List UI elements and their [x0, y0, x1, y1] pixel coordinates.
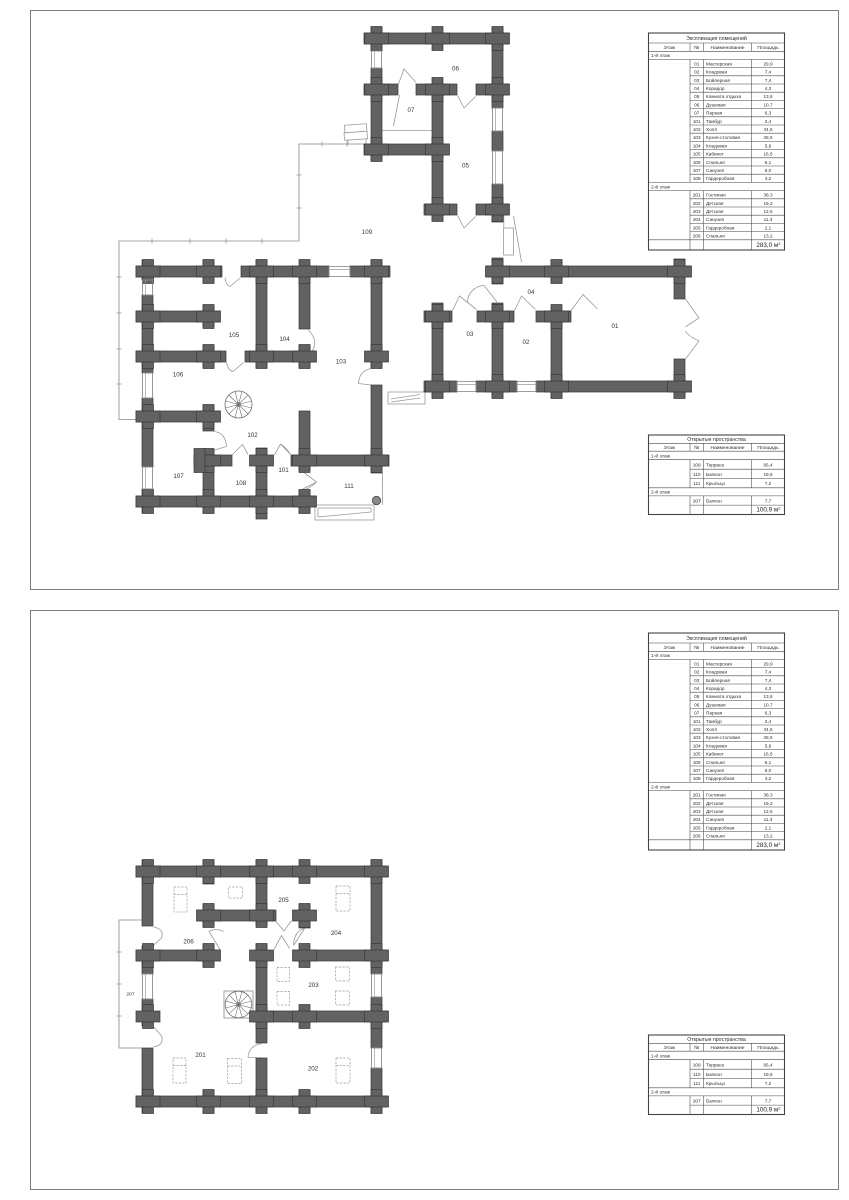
svg-text:107: 107: [173, 473, 184, 480]
svg-text:06: 06: [452, 66, 459, 73]
svg-text:101: 101: [278, 467, 289, 474]
svg-text:205: 205: [278, 897, 289, 904]
svg-text:108: 108: [236, 480, 247, 487]
svg-text:111: 111: [344, 483, 354, 490]
svg-text:07: 07: [408, 107, 415, 114]
svg-text:201: 201: [195, 1052, 206, 1059]
svg-text:104: 104: [279, 336, 290, 343]
svg-text:03: 03: [467, 331, 474, 338]
svg-text:103: 103: [336, 359, 347, 366]
svg-text:206: 206: [183, 939, 194, 946]
svg-text:202: 202: [308, 1066, 319, 1073]
svg-text:203: 203: [308, 982, 319, 989]
svg-text:204: 204: [331, 930, 342, 937]
svg-text:109: 109: [362, 229, 373, 236]
svg-text:105: 105: [229, 332, 240, 339]
svg-text:02: 02: [523, 339, 530, 346]
svg-text:05: 05: [462, 163, 469, 170]
svg-text:102: 102: [247, 432, 258, 439]
svg-text:04: 04: [528, 289, 535, 296]
svg-text:106: 106: [173, 372, 184, 379]
svg-text:01: 01: [612, 323, 619, 330]
svg-text:207: 207: [126, 992, 134, 998]
